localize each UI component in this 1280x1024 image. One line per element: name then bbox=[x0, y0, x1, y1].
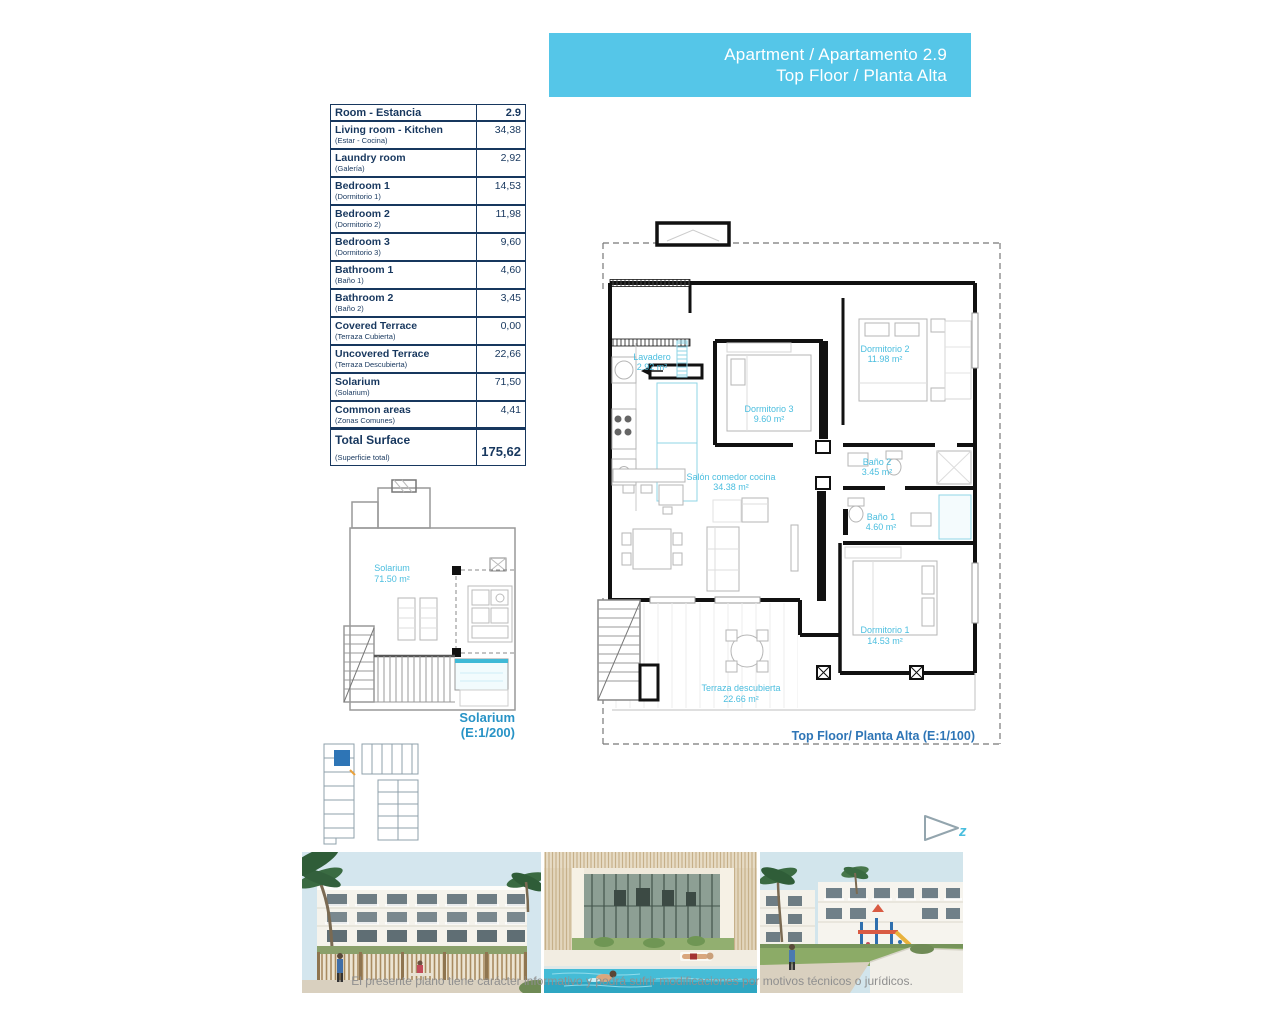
room-name-en: Bedroom 2 bbox=[335, 207, 472, 220]
legal-disclaimer: El presente plano tiene carácter informa… bbox=[280, 974, 984, 988]
table-header-label: Room - Estancia bbox=[331, 105, 477, 121]
floor-title: Top Floor / Planta Alta bbox=[776, 65, 947, 86]
room-name-en: Laundry room bbox=[335, 151, 472, 164]
total-label-es: (Superficie total) bbox=[335, 453, 390, 462]
room-name-es: (Terraza Cubierta) bbox=[335, 332, 472, 341]
highlighted-unit bbox=[334, 750, 350, 766]
solarium-caption-line1: Solarium bbox=[395, 710, 515, 725]
room-name-en: Common areas bbox=[335, 403, 472, 416]
table-row: Solarium(Solarium)71,50 bbox=[331, 373, 526, 401]
apartment-building bbox=[317, 886, 527, 948]
room-name-en: Living room - Kitchen bbox=[335, 123, 472, 136]
room-name-es: (Estar - Cocina) bbox=[335, 136, 472, 145]
summer-kitchen bbox=[468, 586, 512, 642]
top-balcony bbox=[657, 223, 729, 245]
table-row: Common areas(Zonas Comunes)4,41 bbox=[331, 401, 526, 429]
room-name-en: Bathroom 1 bbox=[335, 263, 472, 276]
room-name-en: Solarium bbox=[335, 375, 472, 388]
solarium-pillar bbox=[452, 566, 461, 575]
room-area-value: 2,92 bbox=[477, 149, 526, 177]
photo-playground-buildings bbox=[760, 852, 963, 993]
sunbather bbox=[680, 952, 714, 961]
logo-triangle-icon bbox=[925, 816, 958, 840]
label-dormitorio1: Dormitorio 114.53 m² bbox=[860, 625, 909, 646]
room-name-es: (Dormitorio 3) bbox=[335, 248, 472, 257]
room-area-value: 0,00 bbox=[477, 317, 526, 345]
pool-deck bbox=[544, 950, 757, 966]
title-banner: Apartment / Apartamento 2.9 Top Floor / … bbox=[549, 33, 971, 97]
table-row: Bedroom 1(Dormitorio 1)14,53 bbox=[331, 177, 526, 205]
room-area-value: 3,45 bbox=[477, 289, 526, 317]
sun-loungers bbox=[398, 598, 437, 640]
corridor-wall bbox=[816, 341, 830, 601]
photo-buildings-promenade bbox=[302, 852, 541, 993]
room-area-value: 71,50 bbox=[477, 373, 526, 401]
solarium-stairs bbox=[344, 626, 374, 702]
room-name-es: (Baño 2) bbox=[335, 304, 472, 313]
logo-letter: z bbox=[958, 823, 967, 840]
label-dormitorio2: Dormitorio 211.98 m² bbox=[860, 344, 909, 364]
total-value: 175,62 bbox=[477, 429, 526, 466]
table-row: Laundry room(Galería)2,92 bbox=[331, 149, 526, 177]
building-key-plan bbox=[316, 736, 426, 848]
room-name-en: Bedroom 3 bbox=[335, 235, 472, 248]
living-furniture bbox=[613, 469, 798, 591]
room-name-es: (Galería) bbox=[335, 164, 472, 173]
table-row: Bathroom 1(Baño 1)4,60 bbox=[331, 261, 526, 289]
room-area-table: Room - Estancia 2.9 Living room - Kitche… bbox=[330, 104, 526, 466]
apartment-title: Apartment / Apartamento 2.9 bbox=[724, 44, 947, 65]
photo-strip bbox=[302, 852, 963, 993]
room-name-es: (Solarium) bbox=[335, 388, 472, 397]
label-lavadero: Lavadero2.92 m² bbox=[633, 352, 671, 372]
room-area-value: 4,60 bbox=[477, 261, 526, 289]
label-salon: Salón comedor cocina34.38 m² bbox=[686, 472, 775, 492]
room-name-es: (Dormitorio 1) bbox=[335, 192, 472, 201]
room-name-es: (Terraza Descubierta) bbox=[335, 360, 472, 369]
label-bano1: Baño 14.60 m² bbox=[866, 512, 897, 532]
wall-bush bbox=[910, 944, 934, 954]
table-total-row: Total Surface(Superficie total) 175,62 bbox=[331, 429, 526, 466]
solarium-railing bbox=[374, 656, 455, 702]
label-bano2: Baño 23.45 m² bbox=[862, 457, 893, 477]
plan-sheet: Apartment / Apartamento 2.9 Top Floor / … bbox=[0, 0, 1280, 1024]
room-area-value: 14,53 bbox=[477, 177, 526, 205]
plunge-pool bbox=[455, 659, 508, 706]
room-name-en: Bedroom 1 bbox=[335, 179, 472, 192]
room-name-en: Uncovered Terrace bbox=[335, 347, 472, 360]
table-row: Uncovered Terrace(Terraza Descubierta)22… bbox=[331, 345, 526, 373]
room-area-value: 22,66 bbox=[477, 345, 526, 373]
room-name-es: (Dormitorio 2) bbox=[335, 220, 472, 229]
pool-edge bbox=[544, 966, 757, 969]
room-area-value: 11,98 bbox=[477, 205, 526, 233]
solarium-plan: Solarium71.50 m² bbox=[340, 478, 520, 713]
table-header-row: Room - Estancia 2.9 bbox=[331, 105, 526, 121]
table-row: Living room - Kitchen(Estar - Cocina)34,… bbox=[331, 121, 526, 149]
table-row: Bathroom 2(Baño 2)3,45 bbox=[331, 289, 526, 317]
photo-pool-pavilion bbox=[544, 852, 757, 993]
main-plan-caption: Top Floor/ Planta Alta (E:1/100) bbox=[792, 729, 975, 743]
bedroom1-furniture bbox=[845, 547, 937, 635]
room-area-value: 34,38 bbox=[477, 121, 526, 149]
table-header-value: 2.9 bbox=[477, 105, 526, 121]
label-solarium: Solarium71.50 m² bbox=[374, 563, 410, 584]
table-row: Bedroom 2(Dormitorio 2)11,98 bbox=[331, 205, 526, 233]
table-row: Covered Terrace(Terraza Cubierta)0,00 bbox=[331, 317, 526, 345]
room-name-en: Covered Terrace bbox=[335, 319, 472, 332]
bathroom1-fixtures bbox=[843, 495, 971, 539]
room-name-en: Bathroom 2 bbox=[335, 291, 472, 304]
developer-logo: z bbox=[918, 810, 970, 848]
room-name-es: (Baño 1) bbox=[335, 276, 472, 285]
table-row: Bedroom 3(Dormitorio 3)9,60 bbox=[331, 233, 526, 261]
room-name-es: (Zonas Comunes) bbox=[335, 416, 472, 425]
total-label-en: Total Surface bbox=[335, 431, 472, 447]
room-area-value: 9,60 bbox=[477, 233, 526, 261]
room-area-value: 4,41 bbox=[477, 401, 526, 429]
main-floor-plan: Lavadero2.92 m² Dormitorio 39.60 m² Dorm… bbox=[595, 213, 1005, 748]
